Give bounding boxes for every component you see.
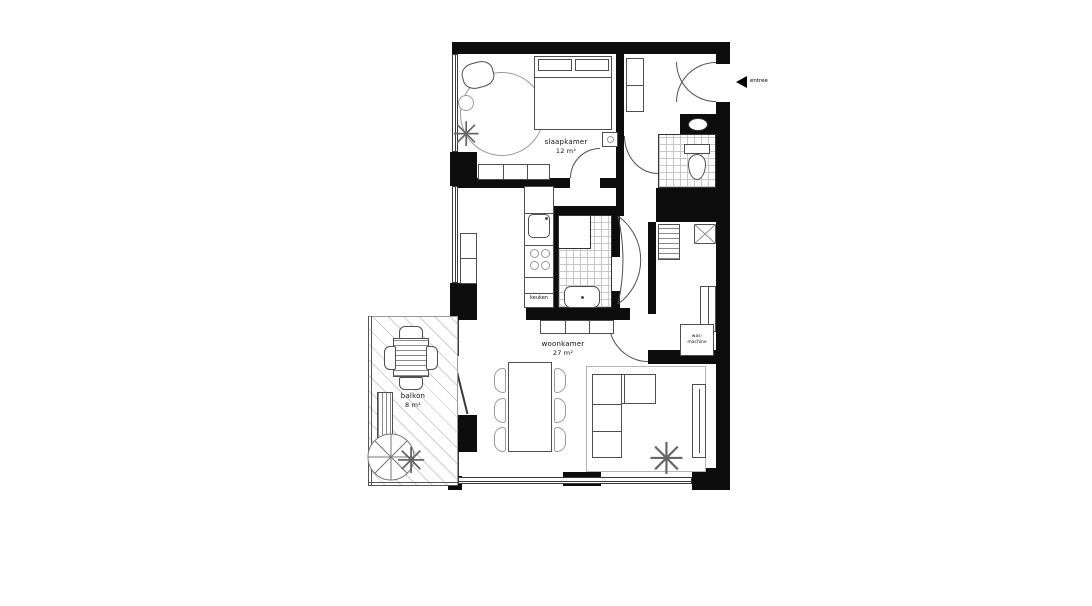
entrance-label: entree (750, 79, 768, 85)
wall-bathroom-top (550, 206, 624, 215)
pillow (538, 59, 572, 71)
wall-right-above-entrance (716, 54, 730, 64)
balcony-area: 8 m² (373, 401, 453, 409)
kitchen-label: keuken (524, 296, 554, 301)
bedroom-area: 12 m² (526, 147, 606, 155)
bedroom-name: slaapkamer (526, 138, 606, 147)
wall-block-kitchen-left (450, 283, 477, 320)
living-area: 27 m² (523, 349, 603, 357)
balcony-table (393, 338, 429, 377)
window-kitchen-left (452, 186, 458, 283)
wall-top (452, 42, 730, 54)
bedroom-side-table (458, 95, 474, 111)
dining-chair (494, 368, 506, 393)
bathroom-door-swing (616, 214, 650, 306)
hall-wardrobe (626, 58, 644, 112)
washing-machine: was- machine (680, 324, 714, 356)
living-label: woonkamer 27 m² (523, 340, 603, 357)
dining-chair (554, 398, 566, 423)
dining-chair (554, 368, 566, 393)
toilet-door-swing (624, 136, 658, 174)
wall-kitchen-bottom (526, 308, 630, 320)
balcony-chair (399, 326, 423, 339)
kitchen-tall-cabinet (460, 233, 477, 284)
hall-basin (688, 118, 708, 131)
sofa-chaise-section (592, 374, 622, 458)
kitchen-sink (528, 214, 550, 238)
toilet-floor (658, 134, 716, 188)
bedroom-closet (478, 164, 550, 180)
bed-blanket-line (535, 77, 611, 78)
ventilation-unit-icon (694, 224, 716, 244)
wall-right (716, 102, 730, 490)
shower-tray (558, 215, 591, 249)
living-door-swing (608, 320, 648, 362)
balcony-chair (384, 346, 396, 370)
bed (534, 56, 612, 130)
balcony-chair (426, 346, 438, 370)
balcony-chair (399, 377, 423, 390)
plant-icon: ✳ (452, 118, 481, 152)
wall-band-toilet-utility (656, 188, 730, 222)
dining-chair (554, 427, 566, 452)
plant-icon: ✳ (396, 444, 426, 480)
washer-label-line2: machine (687, 340, 706, 346)
plant-icon: ✳ (648, 438, 685, 482)
living-sideboard (540, 320, 614, 334)
pillow (575, 59, 609, 71)
entrance-arrow-icon (736, 76, 747, 88)
living-name: woonkamer (523, 340, 603, 349)
balcony-label: balkon 8 m² (373, 392, 453, 409)
wc-cistern (684, 144, 710, 154)
radiator-unit (658, 224, 680, 260)
bathroom-basin (564, 286, 600, 308)
tv-bench (692, 384, 706, 458)
stove (528, 247, 552, 274)
balcony-name: balkon (373, 392, 453, 401)
dining-chair (494, 398, 506, 423)
dining-table (508, 362, 552, 452)
wall-bedroom-hall (616, 52, 624, 178)
dining-chair (494, 427, 506, 452)
bedroom-label: slaapkamer 12 m² (526, 138, 606, 155)
lamp (607, 136, 614, 143)
balcony-railing-bottom (368, 482, 458, 486)
floor-plan-canvas: ✳ slaapkamer 12 m² entree was- machine (0, 0, 1092, 606)
